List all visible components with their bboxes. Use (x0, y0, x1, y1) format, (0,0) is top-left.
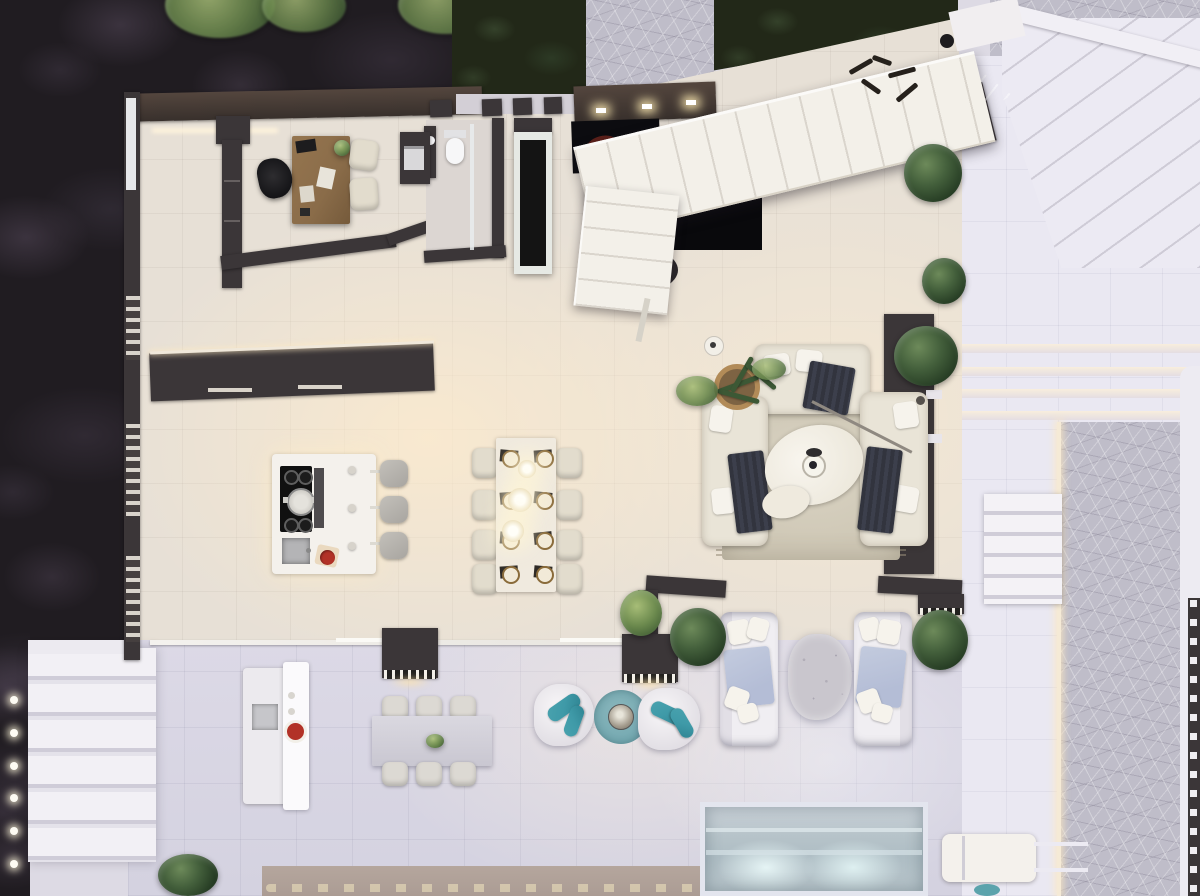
downdraft-hood (314, 468, 324, 528)
glass-partition (470, 124, 474, 250)
path-light-icon (10, 729, 18, 737)
tomato-plate-icon (284, 720, 307, 743)
louvre-vent (126, 556, 140, 642)
terrace-step-band (954, 411, 1200, 420)
pot-handle (283, 497, 288, 503)
pendant-lamp-icon (502, 520, 524, 542)
entry-pillar-light-icon (596, 108, 606, 113)
toilet-cistern (444, 130, 466, 138)
floor-plan-scene (0, 0, 1200, 896)
terrace-dining-chair (382, 762, 408, 786)
burner-icon (284, 470, 299, 485)
potted-plant-icon (904, 144, 962, 202)
dining-chair (556, 564, 582, 594)
left-door-panel (126, 98, 136, 190)
dining-chair (472, 490, 498, 520)
palm-frond (752, 358, 786, 380)
path-light-icon (10, 827, 18, 835)
burner-icon (284, 518, 299, 533)
path-light-icon (10, 762, 18, 770)
terrace-plant-icon (912, 610, 968, 670)
pillar-beam (544, 97, 563, 115)
path-light-icon (10, 794, 18, 802)
entry-pillar-light-icon (642, 104, 652, 109)
pool (700, 802, 928, 896)
garden-steps-landing (28, 640, 132, 654)
potted-plant-icon (922, 258, 966, 304)
island-knob (348, 504, 356, 512)
burner-icon (298, 518, 313, 533)
partition-shelf-line (224, 220, 240, 222)
bottom-edge-plant-icon (158, 854, 218, 896)
terrace-step-band (954, 344, 1200, 353)
sun-lounger (942, 834, 1036, 882)
plate-icon (536, 450, 554, 468)
path-light-icon (10, 860, 18, 868)
dining-chair (556, 448, 582, 478)
entry-pillar-light-icon (686, 100, 696, 105)
dining-chair (472, 448, 498, 478)
palm-frond (676, 376, 718, 406)
arc-lamp-shade-icon (806, 448, 822, 457)
burner-icon (298, 470, 313, 485)
arc-lamp-base (916, 396, 925, 405)
cabinet-handle (208, 388, 252, 392)
plate-icon (502, 566, 520, 584)
island-knob (348, 466, 356, 474)
terrace-dining-chair (450, 762, 476, 786)
console-light-glow (388, 676, 432, 688)
garden-bottom-left (0, 618, 30, 896)
outdoor-cushion (876, 618, 902, 645)
louvre-vent (126, 424, 140, 516)
sofa-cushion (892, 400, 919, 429)
pendant-lamp-icon (518, 460, 536, 478)
bar-stool (380, 460, 408, 487)
bar-stool (380, 496, 408, 523)
potted-plant-icon (894, 326, 958, 386)
office-ceiling-light (152, 128, 278, 133)
media-wall-ledge (926, 390, 942, 399)
lounger-rail (1034, 842, 1088, 846)
lounger-rail (1034, 868, 1088, 872)
table-sprig-icon (426, 734, 444, 748)
plate-icon (536, 566, 554, 584)
outdoor-sink (252, 704, 278, 730)
staircase-lower-flight (573, 186, 679, 315)
path-steps-walkway (984, 494, 1062, 604)
metal-side-table (608, 704, 634, 730)
vase-center (710, 342, 716, 348)
desk-accessory (300, 208, 310, 216)
garden-left (0, 96, 130, 662)
dining-chair (472, 530, 498, 560)
bathroom-wall-right (492, 118, 504, 258)
toilet-icon (446, 138, 464, 164)
plate-icon (536, 532, 554, 550)
guest-chair (349, 177, 379, 211)
slider-door-handle (560, 638, 624, 642)
pool-ledge-step (706, 850, 922, 855)
terrace-plant-icon (620, 590, 662, 636)
printer-icon (404, 146, 424, 170)
pillar-beam (482, 99, 503, 117)
bar-stool (380, 532, 408, 559)
paper-sheet (299, 185, 315, 202)
terrace-step-band (954, 389, 1200, 398)
flagstone-path-right (1060, 422, 1182, 896)
lounger-fold-line (962, 836, 965, 880)
teal-ball-icon (974, 884, 1000, 896)
faucet-icon (306, 548, 311, 553)
table-bowl-center (809, 461, 817, 469)
media-wall-ledge (926, 434, 942, 443)
pendant-lamp-icon (508, 488, 532, 512)
terrace-plant-icon (670, 608, 726, 666)
tomato-plate-icon (320, 550, 335, 565)
path-light-icon (10, 696, 18, 704)
pool-ledge-step (706, 828, 922, 832)
fireplace-glass (520, 140, 546, 266)
pergola-planter-dots (1190, 600, 1197, 894)
hedge-left-of-walkway (452, 0, 594, 97)
outdoor-knob (288, 692, 295, 699)
deck-ornament-edge (266, 884, 696, 892)
outdoor-knob (288, 708, 295, 715)
pillar-beam (430, 100, 453, 118)
louvre-vent (126, 296, 140, 360)
partition-shelf-line (224, 180, 240, 182)
plate-icon (536, 492, 554, 510)
island-knob (348, 542, 356, 550)
plate-icon (502, 450, 520, 468)
guest-chair (348, 138, 380, 172)
garden-steps (28, 648, 156, 862)
pillar-beam (513, 98, 533, 116)
desk-plant-icon (334, 140, 350, 156)
dining-chair (472, 564, 498, 594)
dining-chair (556, 490, 582, 520)
terrace-dining-chair (416, 762, 442, 786)
striped-throw (802, 360, 856, 415)
cabinet-handle (298, 385, 342, 389)
dining-chair (556, 530, 582, 560)
terrace-step-band (954, 367, 1200, 376)
floor-pot-icon (940, 34, 954, 48)
